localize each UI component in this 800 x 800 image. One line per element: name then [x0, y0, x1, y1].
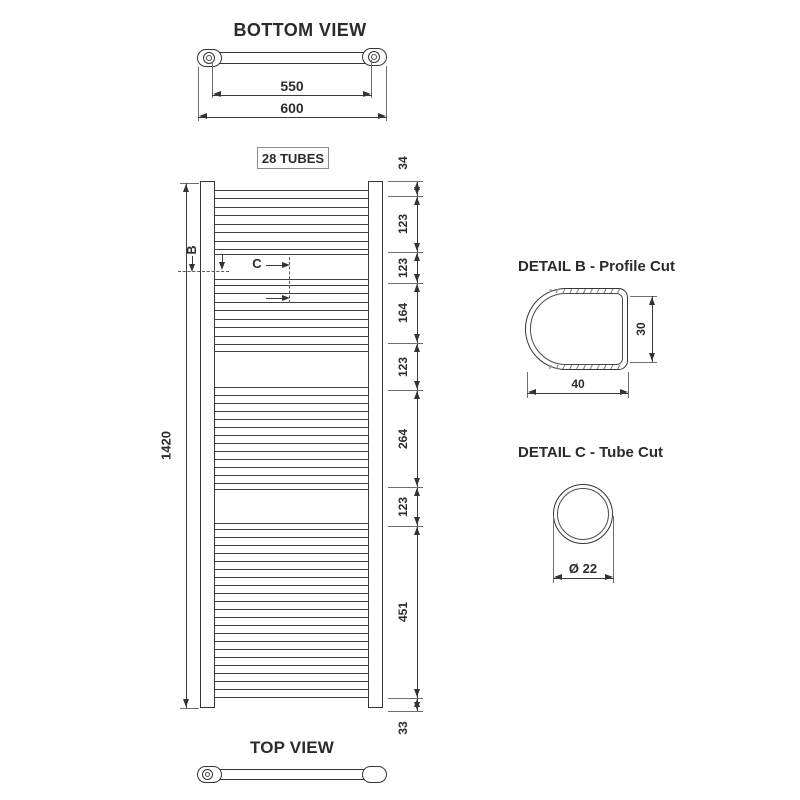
dim-dia-label: Ø 22: [553, 561, 613, 576]
detail-b-hatch-top: [545, 289, 621, 293]
dim-550-ext-right: [371, 60, 372, 98]
tube: [214, 443, 369, 452]
dim-40-line: [527, 393, 628, 394]
dim-chain-arrow-icon: [414, 187, 420, 195]
tube: [214, 545, 369, 554]
tube-count-box: 28 TUBES: [257, 147, 329, 169]
dim-600-label: 600: [262, 100, 322, 116]
dim-1420-ext-bottom: [180, 708, 199, 709]
bottom-view-title: BOTTOM VIEW: [225, 20, 375, 41]
dim-chain-arrow-icon: [414, 243, 420, 251]
tube: [214, 577, 369, 586]
dim-chain-arrow-icon: [414, 381, 420, 389]
tube: [214, 593, 369, 602]
dim-chain-label: 451: [396, 587, 410, 637]
front-view-left-rail: [200, 181, 215, 708]
tube: [214, 689, 369, 698]
tube: [214, 336, 369, 345]
dim-chain-arrow-icon: [414, 488, 420, 496]
tube: [214, 657, 369, 666]
dim-1420-arrow-top-icon: [183, 184, 189, 192]
dim-chain-arrow-icon: [414, 517, 420, 525]
dim-40-ext-right: [628, 372, 629, 398]
tube: [214, 190, 369, 199]
top-view-title: TOP VIEW: [232, 738, 352, 758]
tube: [214, 427, 369, 436]
tube: [214, 459, 369, 468]
dim-40-label: 40: [553, 377, 603, 391]
bottom-view-left-bushing-bore-icon: [206, 55, 212, 61]
towel-gap-2: [214, 351, 369, 388]
towel-gap-3: [214, 489, 369, 524]
dim-550-arrow-left-icon: [213, 91, 221, 97]
dim-chain-label: 34: [396, 138, 410, 188]
dim-30-label: 30: [634, 304, 648, 354]
dim-1420-line: [186, 183, 187, 708]
detail-b-profile-inner: [530, 293, 623, 365]
tube: [214, 641, 369, 650]
dim-chain-label: 123: [396, 243, 410, 293]
tube: [214, 285, 369, 294]
tube: [214, 224, 369, 233]
dim-600-arrow-left-icon: [199, 113, 207, 119]
dim-chain-arrow-icon: [414, 527, 420, 535]
dim-chain-label: 123: [396, 199, 410, 249]
towel-gap-1: [214, 254, 369, 280]
dim-chain-arrow-icon: [414, 344, 420, 352]
dim-550-arrow-right-icon: [363, 91, 371, 97]
top-view-bar: [212, 769, 372, 780]
dim-chain-arrow-icon: [414, 284, 420, 292]
tube: [214, 241, 369, 250]
top-view-right-cap: [362, 766, 387, 783]
dim-550-label: 550: [262, 78, 322, 94]
tube: [214, 395, 369, 404]
dim-40-arrow-right-icon: [620, 389, 628, 395]
technical-drawing: BOTTOM VIEW 550 600 28 TUBES 1420 341231…: [0, 0, 800, 800]
bottom-view-bar: [212, 52, 372, 64]
tube: [214, 319, 369, 328]
tube: [214, 673, 369, 682]
dim-chain-label: 33: [396, 703, 410, 753]
tube: [214, 475, 369, 484]
detail-c-marker-label: C: [247, 256, 267, 271]
dim-chain-label: 164: [396, 288, 410, 338]
top-view-left-bushing-bore-icon: [205, 772, 210, 777]
dim-30-ext-bottom: [630, 362, 657, 363]
dim-chain-arrow-icon: [414, 689, 420, 697]
tube: [214, 302, 369, 311]
detail-c-title: DETAIL C - Tube Cut: [518, 444, 663, 461]
detail-b-arrow-2-icon: [219, 262, 225, 270]
dim-chain-arrow-icon: [414, 478, 420, 486]
dim-600-ext-right: [386, 66, 387, 121]
detail-b-cut-line: [178, 271, 229, 272]
tube: [214, 529, 369, 538]
detail-b-title: DETAIL B - Profile Cut: [518, 258, 675, 275]
dim-chain-arrow-icon: [414, 197, 420, 205]
detail-c-tube-inner: [557, 488, 609, 540]
dim-chain-label: 264: [396, 414, 410, 464]
dim-1420-label: 1420: [159, 421, 174, 471]
dim-dia-ext-right: [613, 516, 614, 583]
dim-chain-arrow-icon: [414, 391, 420, 399]
tube: [214, 411, 369, 420]
dim-chain-arrow-icon: [414, 702, 420, 710]
dim-550-line: [212, 95, 372, 96]
dim-30-arrow-bottom-icon: [649, 353, 655, 361]
dim-chain-label: 123: [396, 482, 410, 532]
detail-b-hatch-bottom: [545, 365, 621, 369]
dim-1420-arrow-bottom-icon: [183, 699, 189, 707]
dim-600-line: [198, 117, 387, 118]
dim-chain-arrow-icon: [414, 253, 420, 261]
dim-30-arrow-top-icon: [649, 297, 655, 305]
dim-600-arrow-right-icon: [378, 113, 386, 119]
dim-40-arrow-left-icon: [528, 389, 536, 395]
dim-chain-arrow-icon: [414, 274, 420, 282]
dim-chain-label: 123: [396, 342, 410, 392]
tube: [214, 609, 369, 618]
tube: [214, 207, 369, 216]
front-view-right-rail: [368, 181, 383, 708]
tube: [214, 561, 369, 570]
dim-chain-arrow-icon: [414, 334, 420, 342]
tube: [214, 625, 369, 634]
detail-c-cut-line: [289, 257, 290, 303]
